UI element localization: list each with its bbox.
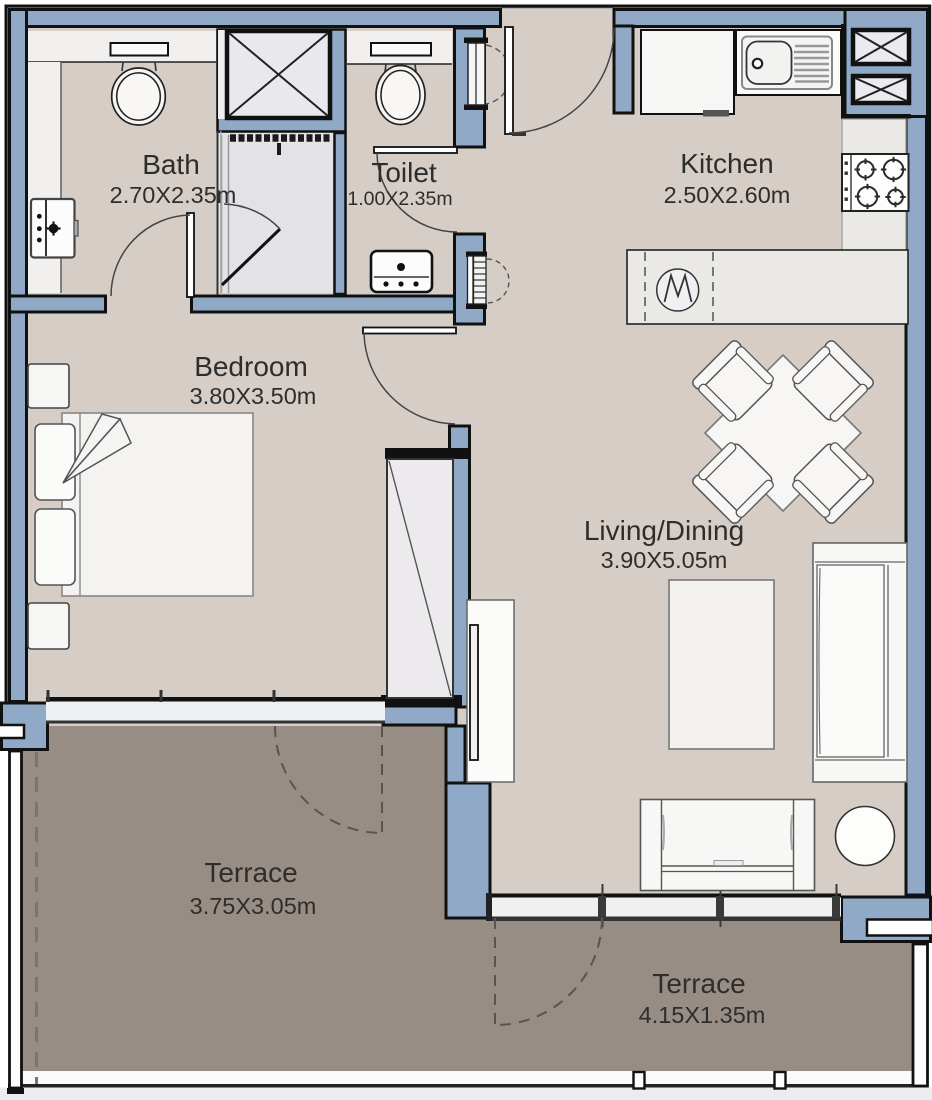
svg-text:1.00X2.35m: 1.00X2.35m <box>347 188 452 210</box>
svg-text:3.90X5.05m: 3.90X5.05m <box>601 547 728 573</box>
svg-text:Kitchen: Kitchen <box>680 148 773 179</box>
svg-text:2.50X2.60m: 2.50X2.60m <box>664 182 791 208</box>
svg-text:Terrace: Terrace <box>652 968 745 999</box>
svg-text:Bedroom: Bedroom <box>194 351 308 382</box>
svg-text:2.70X2.35m: 2.70X2.35m <box>110 182 237 208</box>
svg-text:Toilet: Toilet <box>371 157 437 188</box>
svg-text:Bath: Bath <box>142 149 200 180</box>
svg-text:3.80X3.50m: 3.80X3.50m <box>190 383 317 409</box>
svg-text:Terrace: Terrace <box>204 857 297 888</box>
svg-text:4.15X1.35m: 4.15X1.35m <box>639 1002 766 1028</box>
svg-text:3.75X3.05m: 3.75X3.05m <box>190 893 317 919</box>
svg-text:Living/Dining: Living/Dining <box>584 515 744 546</box>
